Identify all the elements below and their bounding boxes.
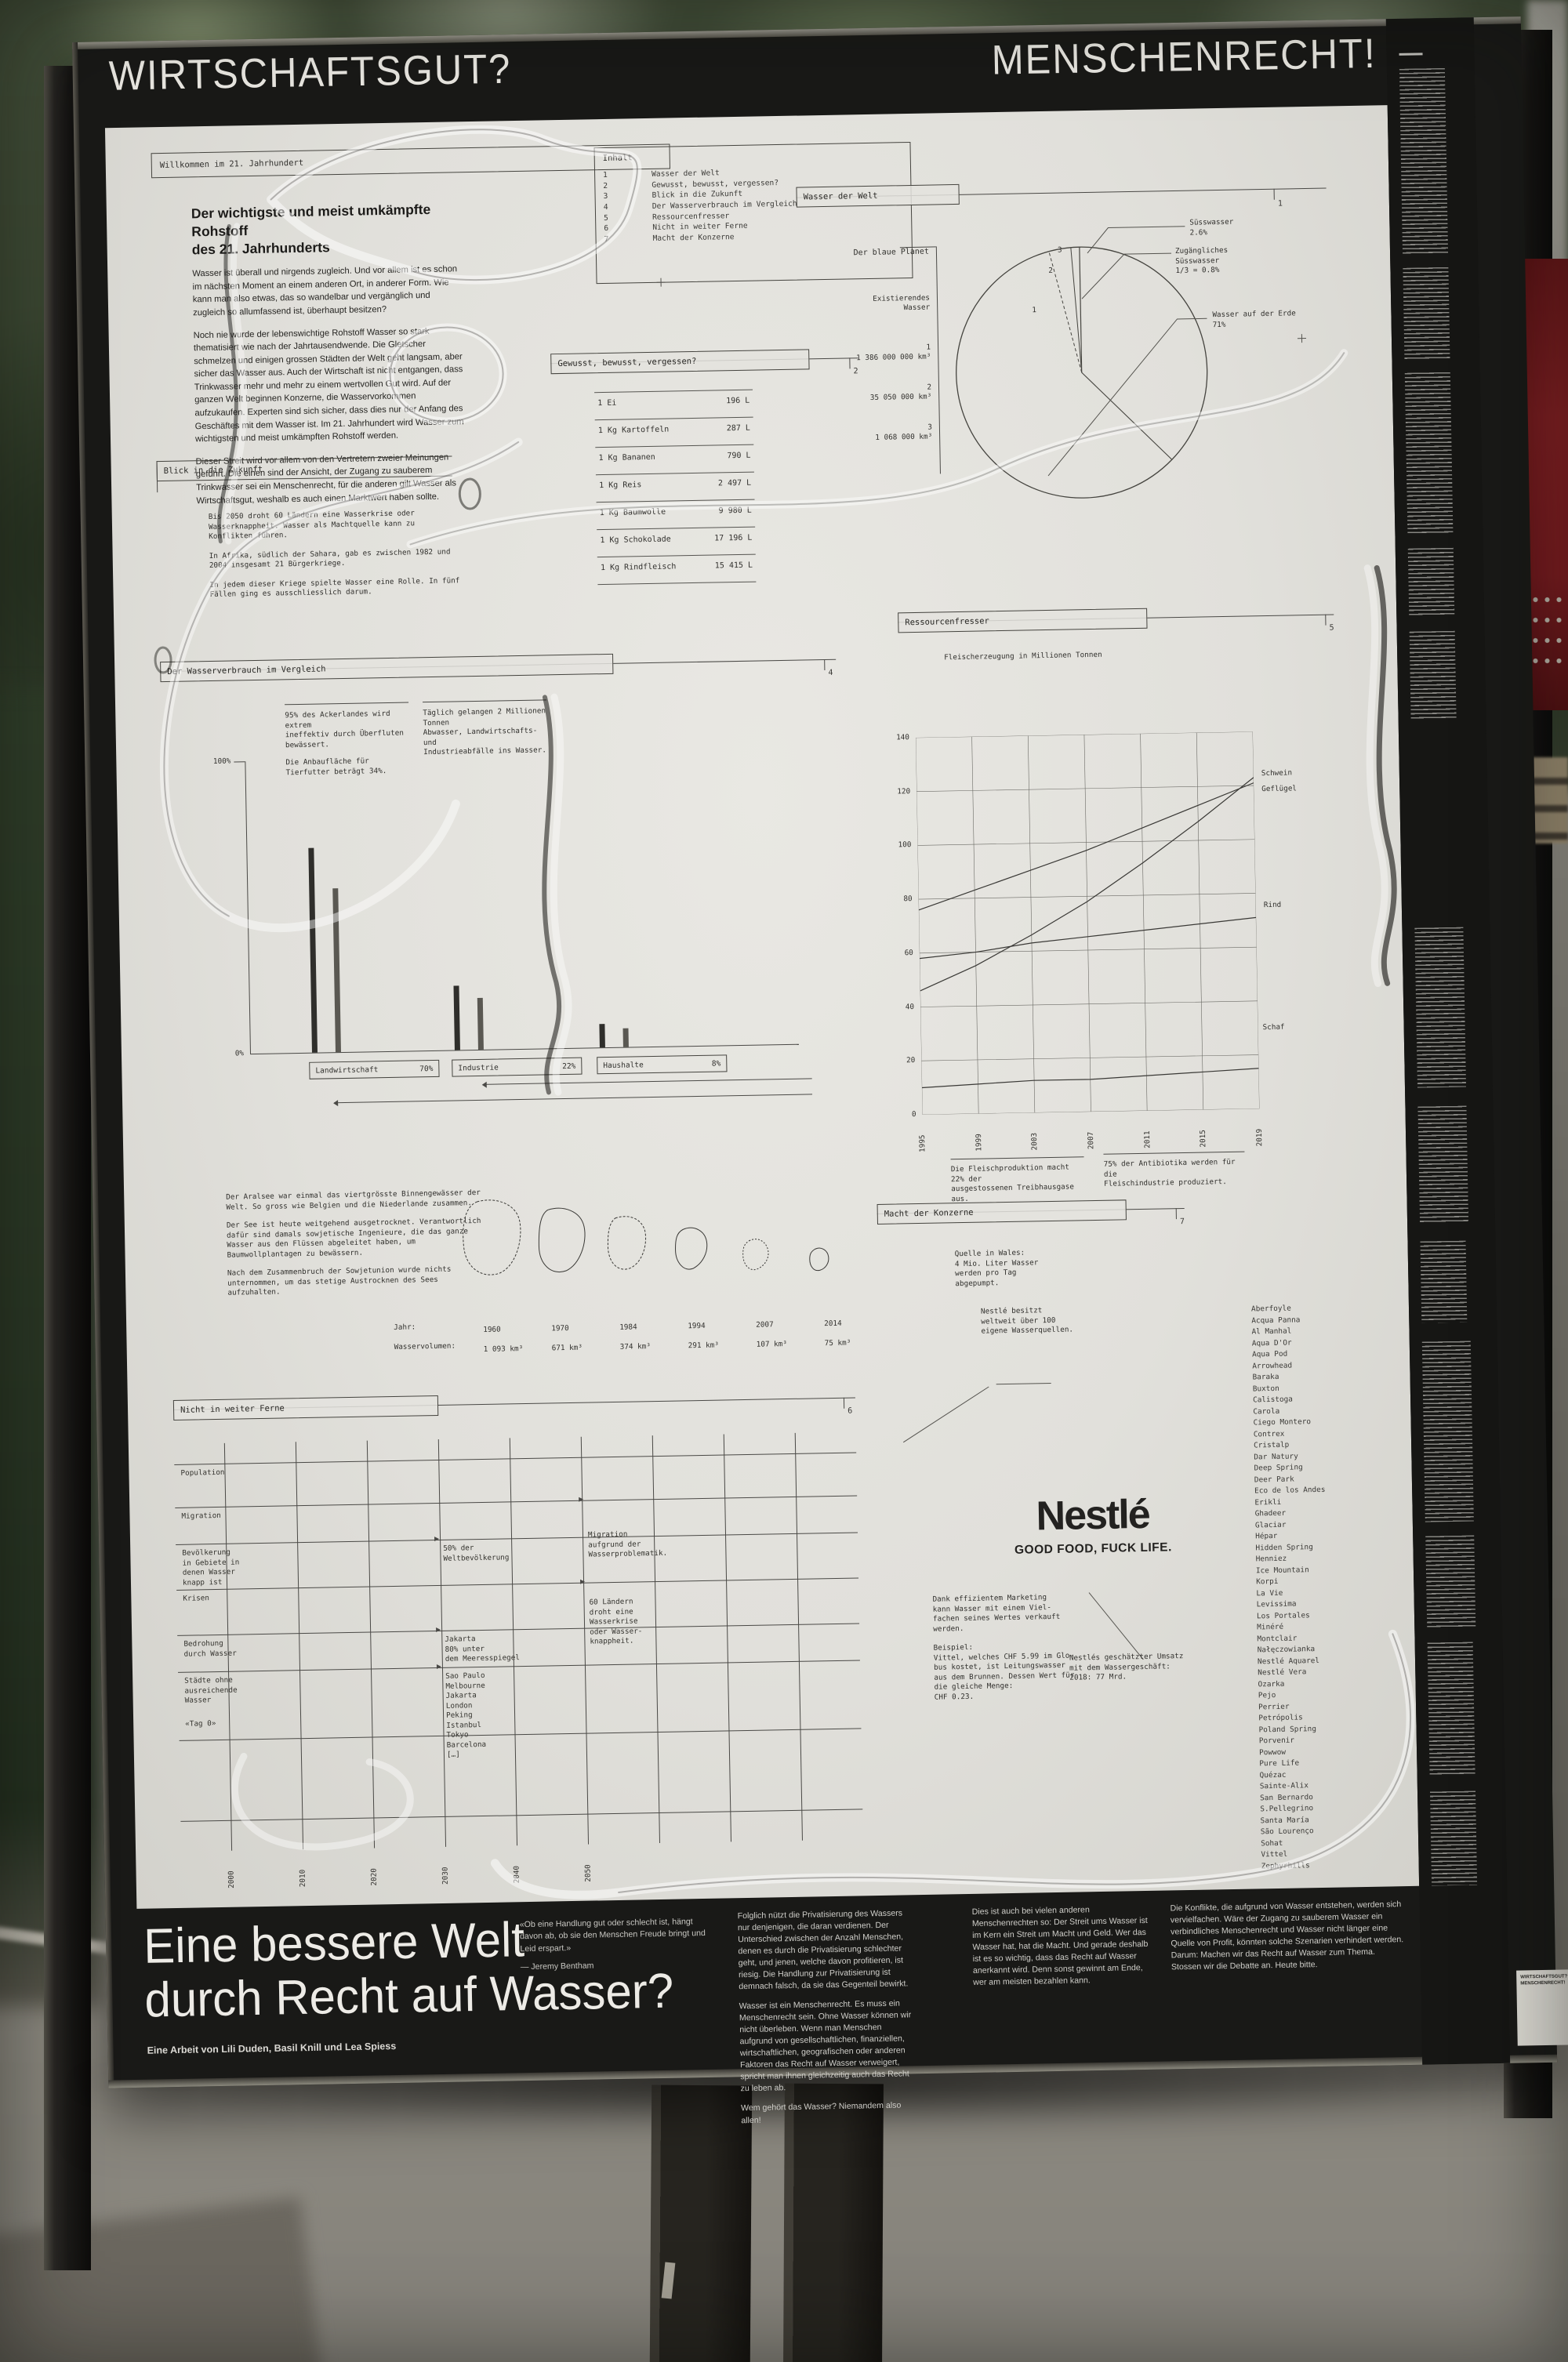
- timeline-row-migration: Migration: [181, 1511, 221, 1522]
- table-row: 1 Kg Reis2 497 L: [596, 472, 755, 503]
- micro-source-heading: [1399, 53, 1423, 56]
- section3-label: Blick in die Zukunft: [164, 465, 263, 476]
- table-row: 1 Kg Schokolade17 196 L: [597, 527, 756, 557]
- micro-source-text: [1422, 1341, 1474, 1522]
- pie-slice-number-2: 2: [1048, 267, 1053, 277]
- meat-chart-y-ticks: 020406080100120140: [868, 685, 1385, 695]
- aral-volume: 374 km³: [620, 1341, 688, 1352]
- timeline-grid-column: [652, 1435, 660, 1843]
- timeline-row-bevoelkerung: Bevölkerung in Gebiete in denen Wasser k…: [182, 1548, 240, 1588]
- bottom-col1-paragraph-1: Folglich nützt die Privatisierung des Wa…: [738, 1907, 913, 1993]
- banner-title-left: WIRTSCHAFTSGUT?: [108, 45, 512, 100]
- quote-attribution: — Jeremy Bentham: [521, 1958, 717, 1974]
- section7-header: Macht der Konzerne: [877, 1199, 1127, 1225]
- bottom-support-post-left: [650, 2085, 752, 2362]
- timeline-year-label: 2010: [298, 1856, 308, 1887]
- toc-label: Macht der Konzerne: [652, 232, 734, 244]
- timeline-grid-column: [367, 1441, 375, 1849]
- timeline-annotation-cities: Sao Paulo Melbourne Jakarta London Pekin…: [445, 1671, 486, 1761]
- table-row: 1 Kg Rindfleisch15 415 L: [597, 554, 757, 586]
- section5-header: Ressourcenfresser: [898, 608, 1147, 633]
- micro-source-text: [1417, 1106, 1468, 1223]
- meat-x-label: 1999: [974, 1120, 984, 1152]
- timeline-annotation-jakarta: Jakarta 80% unter dem Meeresspiegel: [445, 1634, 520, 1664]
- micro-source-text: [1408, 548, 1455, 618]
- timeline-year-label: 2030: [441, 1853, 451, 1885]
- section6-number: 6: [848, 1407, 852, 1416]
- section6-number-tick: [844, 1398, 844, 1409]
- micro-source-text: [1421, 1241, 1468, 1323]
- bar-category-label: Industrie: [458, 1063, 499, 1072]
- marketing-example: Beispiel: Vittel, welches CHF 5.99 im Gl…: [934, 1642, 1083, 1703]
- table-row: 1 Kg Kartoffeln287 L: [595, 417, 754, 448]
- future-text: Bis 2050 droht 60 Ländern eine Wasserkri…: [209, 508, 463, 600]
- scale-subtitle: Existierendes Wasser: [851, 293, 930, 314]
- revenue-fact: Nestlés geschätzter Umsatz mit dem Wasse…: [1069, 1652, 1203, 1684]
- bottom-column-3: Die Konflikte, die aufgrund von Wasser e…: [1170, 1899, 1406, 1974]
- table-cell-item: 1 Kg Reis: [599, 481, 641, 490]
- meat-y-tick: 20: [888, 1056, 915, 1066]
- bar-Haushalte: [599, 1024, 605, 1047]
- meat-x-label: 2003: [1030, 1119, 1040, 1150]
- nestle-logo-block: Nestlé GOOD FOOD, FUCK LIFE.: [1010, 1490, 1175, 1558]
- nestle-brand-list: AberfoyleAcqua PannaAl ManhalAqua D'OrAq…: [1251, 1301, 1410, 1872]
- scale-item-1-value: 1 386 000 000 km³: [852, 353, 931, 364]
- table-cell-value: 196 L: [726, 397, 750, 406]
- future-paragraph-2: In Afrika, südlich der Sahara, gab es zw…: [209, 547, 462, 571]
- pie-chart-water-of-the-world: [926, 200, 1370, 537]
- micro-source-text: [1399, 68, 1448, 254]
- marketing-text: Dank effizientem Marketing kann Wasser m…: [932, 1592, 1082, 1635]
- legend-gefluegel: Geflügel: [1261, 784, 1297, 794]
- aral-year: 1960: [483, 1324, 551, 1335]
- meat-y-tick: 0: [889, 1110, 916, 1120]
- scale-item-2-value: 35 050 000 km³: [853, 393, 931, 404]
- aral-volume: 1 093 km³: [484, 1344, 552, 1355]
- welcome-box: Willkommen im 21. Jahrhundert: [151, 143, 670, 178]
- section7-number-tick: [1176, 1208, 1177, 1219]
- bar-category-value: 8%: [712, 1059, 721, 1068]
- timeline-grid-column: [296, 1442, 303, 1849]
- timeline-row-bedrohung: Bedrohung durch Wasser: [183, 1639, 237, 1660]
- meat-y-tick: 80: [886, 894, 913, 905]
- bar-category-Industrie: Industrie22%: [452, 1058, 582, 1077]
- springs-fact: Nestlé besitzt weltweit über 100 eigene …: [981, 1306, 1073, 1337]
- table-cell-item: 1 Kg Baumwolle: [600, 508, 666, 517]
- intro-paragraph-2: Noch nie wurde der lebenswichtige Rohsto…: [194, 325, 466, 446]
- timeline-grid-row: [175, 1495, 857, 1508]
- bar-chart-y-min: 0%: [225, 1049, 244, 1059]
- table-cell-item: 1 Kg Schokolade: [600, 535, 670, 546]
- section2-label: Gewusst, bewusst, vergessen?: [557, 357, 696, 368]
- pie-slice-number-3: 3: [1058, 246, 1062, 256]
- toc-number: 6: [604, 223, 652, 234]
- meat-production-line-chart: 020406080100120140 199519992003200720112…: [868, 685, 1395, 1212]
- section7-number: 7: [1180, 1217, 1185, 1226]
- bar-chart-baseline: [250, 1044, 799, 1054]
- meat-x-label: 2019: [1255, 1115, 1265, 1146]
- section4-number: 4: [828, 669, 833, 677]
- legend-rind: Rind: [1264, 901, 1282, 911]
- table-cell-value: 9 980 L: [719, 506, 752, 516]
- timeline-row-staedte: Städte ohne ausreichende Wasser: [184, 1676, 238, 1707]
- meat-chart-x-labels: 1995199920032007201120152019: [868, 685, 1385, 695]
- meat-y-tick: 60: [887, 949, 913, 959]
- section2-header: Gewusst, bewusst, vergessen?: [550, 349, 809, 374]
- future-timeline-chart: Population Migration Bevölkerung in Gebi…: [173, 1416, 864, 1907]
- meat-caption-2: 75% der Antibiotika werden für die Fleis…: [1104, 1158, 1246, 1190]
- toc-number: 1: [603, 169, 652, 181]
- timeline-year-label: 2020: [369, 1854, 379, 1885]
- bar-chart-y-axis: [245, 761, 251, 1054]
- welcome-label: Willkommen im 21. Jahrhundert: [160, 158, 304, 171]
- section6-header: Nicht in weiter Ferne: [173, 1395, 438, 1420]
- table-row: 1 Kg Baumwolle9 980 L: [597, 499, 756, 530]
- meat-x-label: 2007: [1087, 1118, 1097, 1149]
- bar-Landwirtschaft: [308, 848, 318, 1053]
- bar-secondary-Landwirtschaft: [332, 888, 341, 1052]
- table-cell-item: 1 Kg Rindfleisch: [601, 562, 677, 572]
- section5-number-tick: [1325, 615, 1326, 626]
- leader-line: [1089, 1592, 1144, 1660]
- section7-label: Macht der Konzerne: [884, 1208, 974, 1219]
- section2-number-tick: [849, 357, 850, 368]
- scale-title: Der blaue Planet: [851, 247, 929, 259]
- table-cell-item: 1 Ei: [597, 399, 616, 408]
- bar-chart-top-tick: [234, 761, 245, 762]
- leader-line: [996, 1383, 1051, 1384]
- meat-x-label: 2015: [1199, 1116, 1209, 1147]
- toc-label: Gewusst, bewusst, vergessen?: [652, 178, 779, 190]
- section5-label: Ressourcenfresser: [905, 616, 989, 627]
- micro-source-text: [1405, 372, 1454, 535]
- timeline-year-label: 2000: [227, 1857, 237, 1889]
- blue-planet-scale: Der blaue Planet Existierendes Wasser 1 …: [851, 246, 941, 475]
- pie-label-water-on-earth: Wasser auf der Erde 71%: [1212, 309, 1296, 330]
- timeline-grid-row: [180, 1728, 862, 1740]
- timeline-grid-column: [795, 1433, 803, 1841]
- mini-label-line-2: MENSCHENRECHT!: [1520, 1980, 1568, 1987]
- table-cell-item: 1 Kg Bananen: [598, 453, 655, 463]
- micro-source-text: [1425, 1535, 1475, 1628]
- micro-source-text: [1430, 1791, 1477, 1885]
- aral-year: 2014: [824, 1319, 892, 1330]
- table-cell-value: 287 L: [727, 424, 750, 434]
- meat-y-tick: 120: [884, 787, 910, 797]
- aral-years-row: 196019701984199420072014: [483, 1314, 906, 1336]
- table-cell-value: 2 497 L: [718, 479, 751, 488]
- section1-number-tick: [1274, 189, 1275, 200]
- bottom-column-2: Dies ist auch bei vielen anderen Mensche…: [972, 1903, 1151, 1989]
- micro-source-text: [1414, 927, 1466, 1088]
- table-cell-value: 17 196 L: [714, 534, 752, 543]
- registration-mark: [656, 278, 665, 287]
- section1-label: Wasser der Welt: [804, 191, 878, 202]
- bar-category-label: Landwirtschaft: [315, 1065, 378, 1075]
- meat-caption-1: Die Fleischproduktion macht 22% der ausg…: [951, 1163, 1085, 1204]
- quote-block: «Ob eine Handlung gut oder schlecht ist,…: [520, 1916, 717, 1974]
- meat-y-tick: 100: [884, 841, 911, 851]
- photograph-of-billboard: WIRTSCHAFTSGUT? MENSCHENRECHT! Willkomme…: [0, 0, 1568, 2362]
- timeline-row-krisen: Krisen: [183, 1594, 209, 1604]
- timeline-grid-row: [174, 1452, 856, 1464]
- credit-line: Eine Arbeit von Lili Duden, Basil Knill …: [147, 2041, 396, 2056]
- bar-category-Haushalte: Haushalte8%: [597, 1054, 727, 1074]
- meat-chart-title: Fleischerzeugung in Millionen Tonnen: [944, 651, 1102, 663]
- aral-volume: 291 km³: [688, 1341, 757, 1352]
- aral-volume: 75 km³: [825, 1338, 893, 1349]
- meat-x-label: 2011: [1142, 1117, 1152, 1148]
- timeline-year-label: 2050: [583, 1851, 593, 1882]
- nestle-logo: Nestlé: [1010, 1490, 1175, 1540]
- comparison-arrow-1: [483, 1078, 812, 1084]
- bar-secondary-Haushalte: [623, 1029, 629, 1047]
- table-row: 1 Ei196 L: [594, 390, 753, 420]
- brand-item: Zephyrhills: [1261, 1858, 1410, 1872]
- section5-number: 5: [1329, 623, 1334, 632]
- meat-y-tick: 40: [887, 1003, 914, 1013]
- timeline-annotation-weltbevoelkerung: 50% der Weltbevölkerung: [443, 1543, 509, 1564]
- bar-secondary-Industrie: [477, 998, 484, 1050]
- future-paragraph-3: In jedem dieser Kriege spielte Wasser ei…: [209, 576, 462, 600]
- pie-label-accessible-freshwater: Zugängliches Süsswasser 1/3 = 0.8%: [1175, 246, 1229, 277]
- section6-label: Nicht in weiter Ferne: [180, 1403, 285, 1414]
- toc-number: 5: [604, 212, 652, 223]
- poster-sheet: Willkommen im 21. Jahrhundert Der wichti…: [105, 105, 1419, 1909]
- aral-year: 1994: [688, 1321, 756, 1332]
- meat-chart-plot: [916, 731, 1259, 1115]
- toc-number: 3: [603, 190, 652, 202]
- meat-y-tick: 140: [883, 733, 909, 743]
- aral-volume: 671 km³: [552, 1343, 620, 1354]
- aral-volume: 107 km³: [757, 1339, 825, 1350]
- intro-title: Der wichtigste und meist umkämpfte Rohst…: [191, 200, 463, 258]
- future-paragraph-1: Bis 2050 droht 60 Ländern eine Wasserkri…: [209, 508, 462, 542]
- comparison-arrow-2: [334, 1094, 812, 1103]
- bar-category-value: 22%: [562, 1061, 575, 1070]
- timeline-year-label: 2040: [512, 1852, 522, 1883]
- bar-category-label: Haushalte: [603, 1061, 644, 1070]
- timeline-grid-row: [176, 1532, 858, 1544]
- aral-volume-label: Wasservolumen:: [394, 1341, 481, 1353]
- billboard: WIRTSCHAFTSGUT? MENSCHENRECHT! Willkomme…: [72, 16, 1557, 2088]
- aral-year: 1984: [619, 1322, 688, 1333]
- virtual-water-table: 1 Ei196 L1 Kg Kartoffeln287 L1 Kg Banane…: [594, 390, 756, 586]
- pie-label-freshwater: Süsswasser 2.6%: [1189, 218, 1233, 238]
- micro-source-text: [1403, 267, 1450, 361]
- timeline-row-tag-null: «Tag 0»: [185, 1719, 216, 1729]
- bar-chart-y-max: 100%: [212, 757, 230, 767]
- mini-poster-label: WIRTSCHAFTSGUT? MENSCHENRECHT!: [1516, 1969, 1568, 2045]
- toc-number: 4: [604, 201, 652, 213]
- section4-label: Der Wasserverbrauch im Vergleich: [167, 664, 325, 677]
- aral-year: 1970: [551, 1323, 619, 1334]
- leader-line: [903, 1387, 989, 1443]
- section1-header: Wasser der Welt: [796, 184, 959, 208]
- meat-caption-1-box: Die Fleischproduktion macht 22% der ausg…: [951, 1156, 1085, 1204]
- toc-title: Inhalt: [603, 147, 902, 164]
- pie-slice-number-1: 1: [1032, 306, 1036, 316]
- timeline-annotation-wasserkrise: 60 Ländern droht eine Wasserkrise oder W…: [589, 1597, 642, 1647]
- aral-volumes-row: 1 093 km³671 km³374 km³291 km³107 km³75 …: [484, 1333, 907, 1355]
- timeline-grid-row: [176, 1577, 858, 1590]
- table-row: 1 Kg Bananen790 L: [595, 444, 754, 475]
- meat-x-label: 1995: [918, 1121, 928, 1152]
- toc-number: 2: [603, 180, 652, 192]
- micro-source-text: [1428, 1642, 1475, 1776]
- scale-item-3-value: 1 068 000 km³: [854, 433, 932, 444]
- bottom-column-1: Folglich nützt die Privatisierung des Wa…: [738, 1907, 916, 2126]
- bar-Industrie: [454, 985, 460, 1050]
- table-cell-item: 1 Kg Kartoffeln: [598, 426, 669, 436]
- timeline-grid-column: [724, 1434, 731, 1841]
- intro-paragraph-1: Wasser ist überall und nirgends zugleich…: [192, 263, 463, 319]
- quote-text: «Ob eine Handlung gut oder schlecht ist,…: [520, 1916, 717, 1956]
- timeline-row-population: Population: [180, 1468, 224, 1479]
- marketing-block: Dank effizientem Marketing kann Wasser m…: [932, 1592, 1083, 1703]
- meat-caption-2-box: 75% der Antibiotika werden für die Fleis…: [1103, 1152, 1245, 1190]
- section2-number: 2: [854, 367, 858, 376]
- bar-category-value: 70%: [419, 1065, 433, 1073]
- timeline-grid-row: [180, 1809, 862, 1821]
- table-cell-value: 15 415 L: [715, 561, 753, 571]
- section4-header: Der Wasserverbrauch im Vergleich: [160, 654, 613, 682]
- wales-fact: Quelle in Wales: 4 Mio. Liter Wasser wer…: [955, 1248, 1039, 1289]
- aral-year-label: Jahr:: [394, 1322, 480, 1333]
- bar-category-Landwirtschaft: Landwirtschaft70%: [309, 1060, 439, 1079]
- section4-number-tick: [824, 659, 825, 670]
- table-cell-value: 790 L: [727, 452, 750, 461]
- aral-sea-shrinking-outlines: [445, 1188, 886, 1283]
- legend-schwein: Schwein: [1261, 768, 1292, 778]
- bottom-col1-paragraph-2: Wasser ist ein Menschenrecht. Es muss ei…: [739, 1998, 915, 2095]
- nestle-parody-slogan: GOOD FOOD, FUCK LIFE.: [1011, 1540, 1175, 1558]
- water-usage-bar-chart: 100% 0% Landwirtschaft70%Industrie22%Hau…: [218, 735, 820, 1121]
- bottom-col1-paragraph-3: Wem gehört das Wasser? Niemandem also al…: [741, 2100, 916, 2127]
- aral-year: 2007: [756, 1319, 824, 1330]
- toc-number: 7: [604, 234, 652, 245]
- timeline-annotation-migration: Migration aufgrund der Wasserproblematik…: [588, 1529, 667, 1560]
- legend-schaf: Schaf: [1263, 1023, 1285, 1033]
- banner-title-right: MENSCHENRECHT!: [991, 30, 1377, 84]
- micro-source-text: [1410, 631, 1457, 720]
